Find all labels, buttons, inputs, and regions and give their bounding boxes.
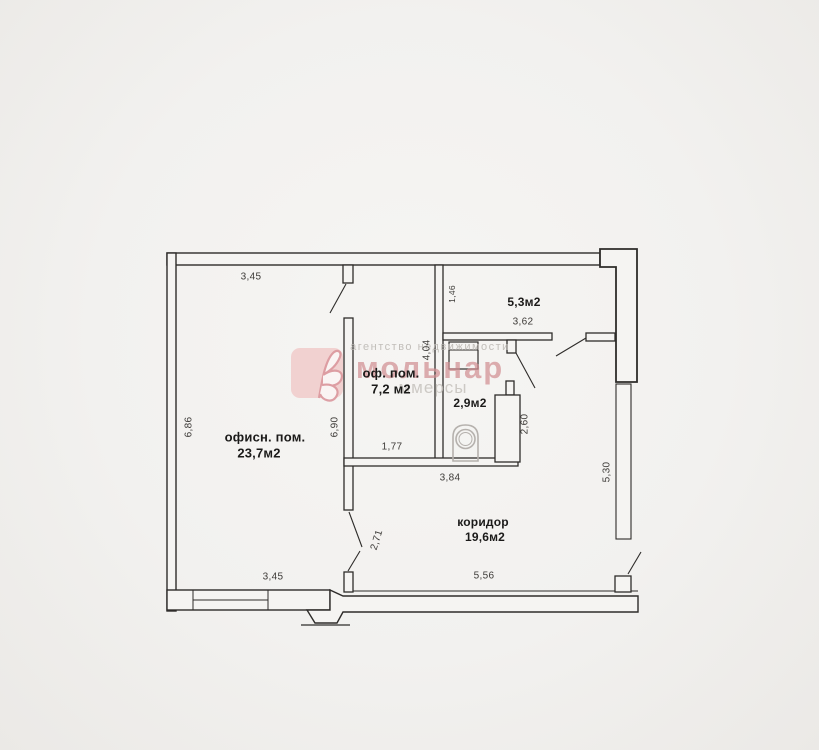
wc-wall-chunk bbox=[495, 395, 520, 462]
dim-wc-height: 2,60 bbox=[520, 414, 531, 435]
right-window-wall bbox=[616, 384, 631, 539]
dim-top-right-offset: 1,46 bbox=[447, 285, 457, 303]
room-area-office-main: 23,7м2 bbox=[237, 446, 280, 461]
door-swing-room-tr bbox=[556, 338, 586, 356]
room-label-office-main: офисн. пом. bbox=[225, 430, 306, 445]
wc-door-post-upper bbox=[507, 340, 516, 353]
dim-inner-wall-height: 6,90 bbox=[330, 417, 341, 438]
room-area-wc: 2,9м2 bbox=[453, 396, 486, 410]
dim-middle-wall-height: 4,04 bbox=[422, 340, 433, 361]
entry-door-post bbox=[615, 576, 631, 592]
toilet-icon bbox=[453, 425, 478, 461]
dim-room-tr-width: 3,62 bbox=[513, 317, 534, 328]
room-label-corridor: коридор bbox=[457, 515, 509, 529]
door-post-top bbox=[343, 265, 353, 283]
wall-middle bbox=[435, 265, 443, 462]
floor-plan-page: агентство недвижимости мольнар ммерсы оф… bbox=[0, 0, 819, 750]
wall-corridor-top bbox=[344, 458, 518, 466]
door-swing-top bbox=[330, 284, 346, 313]
bottom-wall bbox=[167, 590, 638, 625]
bottom-wall-right bbox=[307, 590, 638, 623]
door-swing-entry bbox=[628, 552, 641, 574]
wall-office-main bbox=[344, 318, 353, 510]
dim-top-width: 3,45 bbox=[241, 272, 262, 283]
dim-corridor-top-width: 3,84 bbox=[440, 473, 461, 484]
sink-icon bbox=[449, 342, 478, 369]
room-area-corridor: 19,6м2 bbox=[465, 530, 505, 544]
dim-corridor-bottom-width: 5,56 bbox=[474, 571, 495, 582]
top-right-wall bbox=[600, 249, 637, 382]
left-wall bbox=[167, 253, 176, 611]
wall-room-tr-bottom bbox=[443, 333, 552, 340]
door-swing-office-main bbox=[348, 512, 362, 571]
room-area-top-right: 5,3м2 bbox=[507, 295, 540, 309]
room-label-office-small: оф. пом. bbox=[363, 366, 420, 381]
dim-left-height: 6,86 bbox=[184, 417, 195, 438]
top-wall bbox=[167, 253, 600, 265]
door-swing-wc bbox=[516, 353, 535, 388]
wc-door-post-lower bbox=[506, 381, 514, 395]
dim-right-window-height: 5,30 bbox=[602, 462, 613, 483]
dim-small-office-width: 1,77 bbox=[382, 442, 403, 453]
door-post-bottom bbox=[344, 572, 353, 592]
room-area-office-small: 7,2 м2 bbox=[371, 382, 411, 397]
dim-bottom-left-width: 3,45 bbox=[263, 572, 284, 583]
door-post-room-tr bbox=[586, 333, 615, 341]
